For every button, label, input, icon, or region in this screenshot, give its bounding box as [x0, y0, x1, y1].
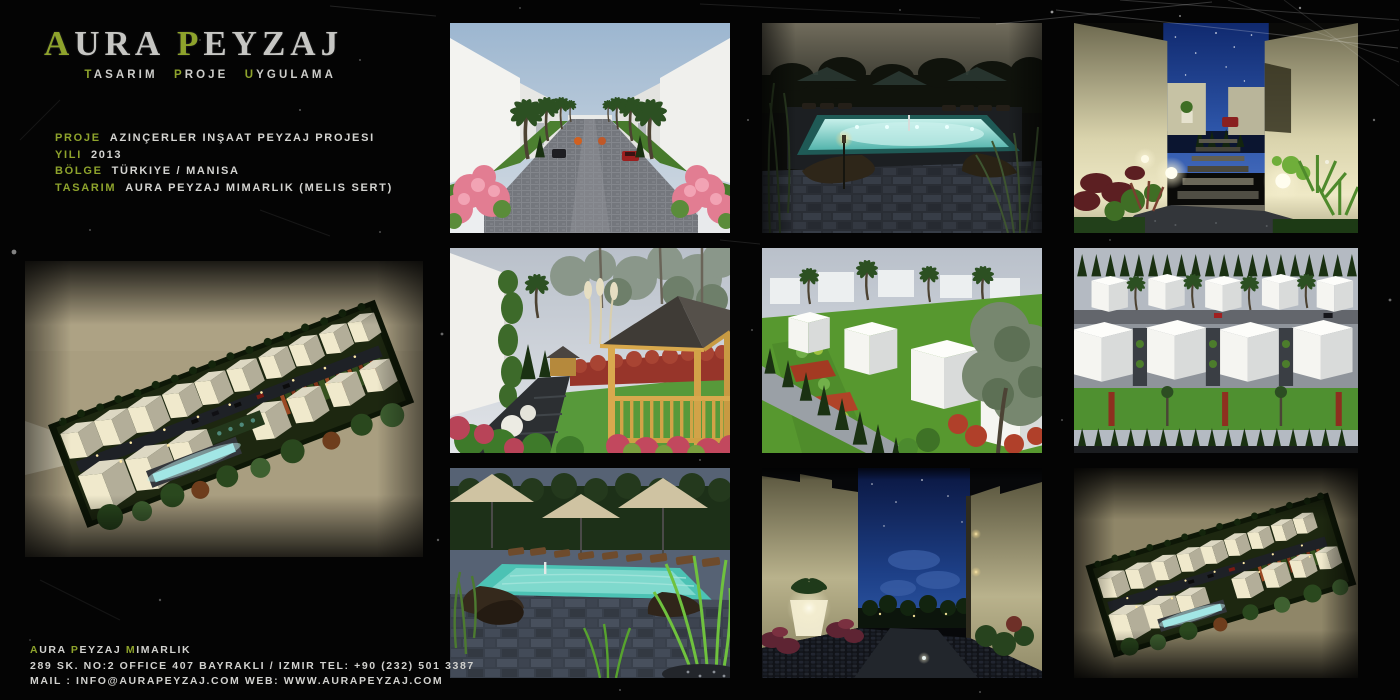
- footer-company: AURA PEYZAJ MIMARLIK: [30, 644, 475, 656]
- thumbnail-street-palms-day: [450, 23, 730, 233]
- street-day-graphic: [450, 23, 730, 233]
- footer-address: 289 SK. NO:2 OFFICE 407 BAYRAKLI / IZMIR…: [30, 660, 475, 672]
- thumbnail-masterplan-dusk: [1074, 468, 1358, 678]
- courtyard-night-graphic: [762, 468, 1042, 678]
- path-night-graphic: [1074, 23, 1358, 233]
- footer-web-mail: MAIL : INFO@AURAPEYZAJ.COM WEB: WWW.AURA…: [30, 675, 475, 687]
- masterplan-dusk-graphic: [25, 261, 423, 557]
- project-row: YILI2013: [55, 149, 393, 161]
- thumbnail-pool-day: [450, 468, 730, 678]
- brand-block: AURA PEYZAJ TASARIM PROJE UYGULAMA: [44, 24, 344, 81]
- project-info: PROJEAZINÇERLER INŞAAT PEYZAJ PROJESI YI…: [55, 132, 393, 198]
- project-row: PROJEAZINÇERLER INŞAAT PEYZAJ PROJESI: [55, 132, 393, 144]
- project-row: BÖLGETÜRKIYE / MANISA: [55, 165, 393, 177]
- thumbnail-gazebo-garden: [450, 248, 730, 453]
- project-row: TASARIMAURA PEYZAJ MIMARLIK (MELIS SERT): [55, 182, 393, 194]
- pool-day-graphic: [450, 468, 730, 678]
- thumbnail-pool-night: [762, 23, 1042, 233]
- thumbnail-site-grid-aerial: [1074, 248, 1358, 453]
- logo-initial: P: [177, 24, 203, 63]
- footer-contact: AURA PEYZAJ MIMARLIK 289 SK. NO:2 OFFICE…: [30, 644, 475, 691]
- site-grid-graphic: [1074, 248, 1358, 453]
- thumbnail-garden-path-night: [1074, 23, 1358, 233]
- logo-tagline: TASARIM PROJE UYGULAMA: [44, 69, 336, 81]
- logo-initial: A: [44, 24, 74, 63]
- site-dusk-graphic: [1074, 468, 1358, 678]
- portfolio-page: { "page": { "background_color": "#040404…: [0, 0, 1400, 700]
- logo-title: AURA PEYZAJ: [44, 24, 344, 64]
- thumbnail-courtyard-night: [762, 468, 1042, 678]
- villas-aerial-graphic: [762, 248, 1042, 453]
- gazebo-day-graphic: [450, 248, 730, 453]
- pool-night-graphic: [762, 23, 1042, 233]
- hero-masterplan-render: [25, 261, 423, 557]
- thumbnail-villas-row-aerial: [762, 248, 1042, 453]
